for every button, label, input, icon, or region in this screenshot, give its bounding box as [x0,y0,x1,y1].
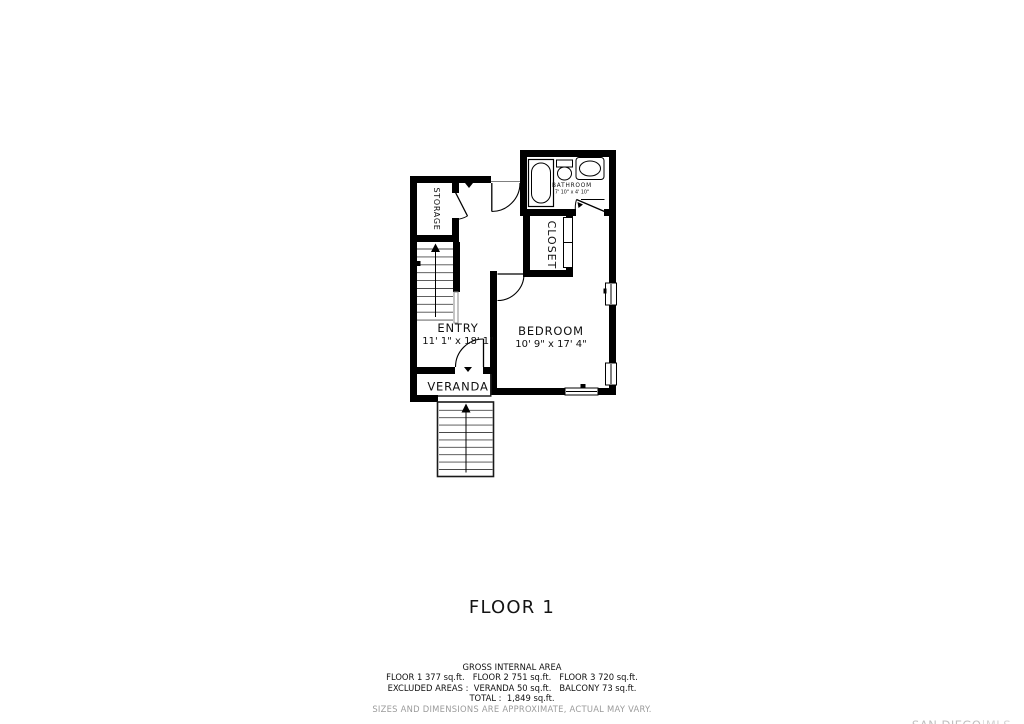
summary-disclaimer: SIZES AND DIMENSIONS ARE APPROXIMATE, AC… [0,704,1024,714]
summary-total: TOTAL : 1,849 sq.ft. [0,693,1024,703]
summary-heading: GROSS INTERNAL AREA [0,662,1024,672]
stairs-exterior [438,402,494,477]
area-summary: GROSS INTERNAL AREA FLOOR 1 377 sq.ft. F… [0,662,1024,714]
window-tick [581,384,586,389]
summary-excluded: EXCLUDED AREAS : VERANDA 50 sq.ft. BALCO… [0,683,1024,693]
stair-railing [454,292,458,323]
summary-floors: FLOOR 1 377 sq.ft. FLOOR 2 751 sq.ft. FL… [0,672,1024,682]
room-bathroom-label: BATHROOM [552,183,592,189]
closet-sliding-doors [564,218,573,268]
mls-watermark: SAN DIEGO|MLS [895,704,1011,724]
stairs-interior [417,244,458,324]
bathroom-door-swing [575,200,604,212]
room-entry-label: ENTRY [437,321,478,335]
room-storage-label: STORAGE [432,188,441,231]
window [565,388,598,395]
watermark-brand: SAN DIEGO [912,718,982,724]
toilet [557,160,573,180]
room-bedroom-dimensions: 10' 9" x 17' 4" [515,339,587,350]
storage-door-swing [456,193,468,220]
room-bathroom-dimensions: 7' 10" x 4' 10" [555,190,589,196]
opening-tick [465,183,473,188]
window [606,283,617,305]
opening-tick [464,367,472,372]
bedroom-door-swing [498,274,525,301]
room-closet-label: CLOSET [545,221,558,270]
window [606,363,617,385]
window-tick [604,289,607,294]
floor-title: FLOOR 1 [0,597,1024,618]
entry-door-swing [491,182,520,212]
room-bedroom-label: BEDROOM [518,324,584,338]
bathtub [529,160,554,207]
floor-plan-page: STORAGE CLOSET BATHROOM 7' 10" x 4' 10" … [0,0,1024,724]
room-veranda-label: VERANDA [427,380,488,394]
sink [576,158,604,180]
watermark-suffix: MLS [986,718,1011,724]
room-entry-dimensions: 11' 1" x 18' 1" [422,336,494,347]
